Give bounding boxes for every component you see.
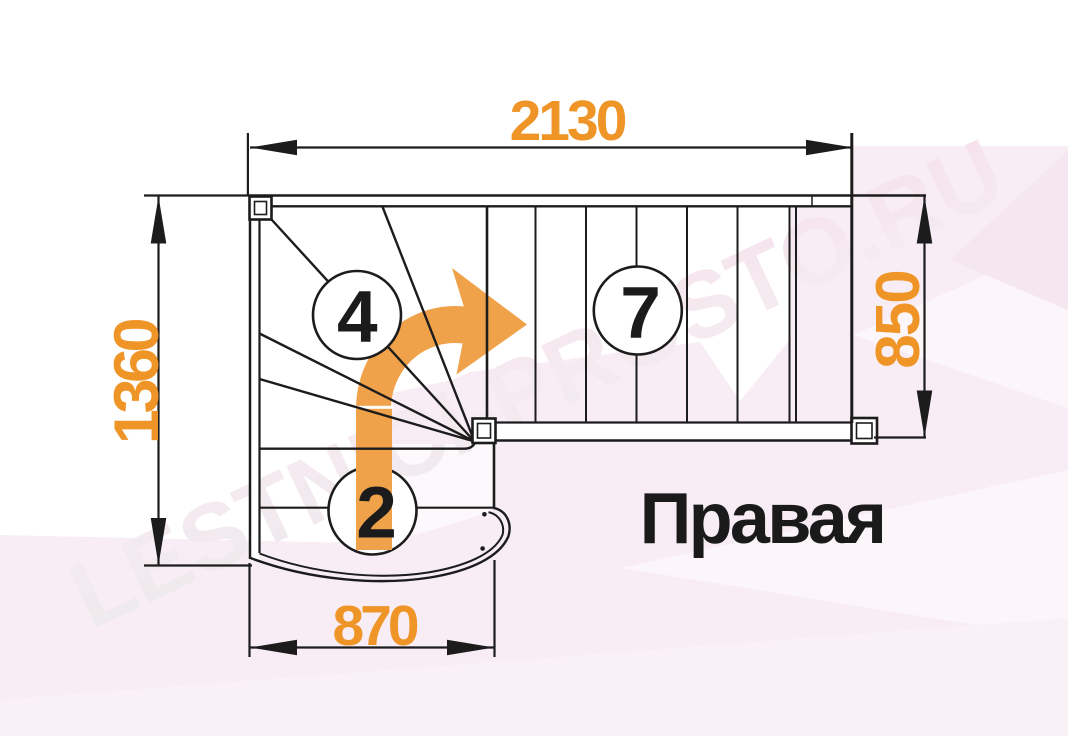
svg-text:850: 850 — [864, 271, 933, 368]
svg-text:7: 7 — [620, 273, 661, 354]
svg-text:4: 4 — [337, 277, 378, 358]
svg-text:2130: 2130 — [510, 89, 626, 153]
svg-text:Правая: Правая — [640, 479, 885, 559]
svg-text:2: 2 — [356, 472, 397, 553]
svg-text:1360: 1360 — [102, 319, 172, 444]
svg-text:870: 870 — [332, 594, 417, 658]
